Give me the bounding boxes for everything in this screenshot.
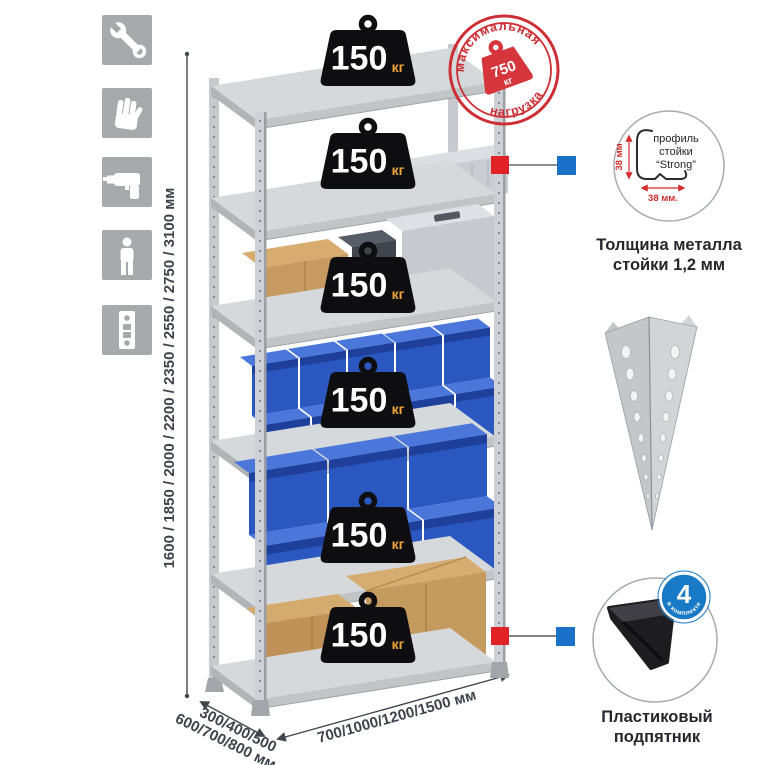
- load-unit: кг: [392, 401, 405, 417]
- profile-detail: 38 мм 38 мм. профиль стойки “Strong” Тол…: [596, 111, 742, 274]
- load-value: 150: [331, 267, 388, 305]
- load-unit: кг: [392, 162, 405, 178]
- profile-dim-bottom: 38 мм.: [648, 193, 678, 204]
- foot-caption-line2: подпятник: [614, 728, 701, 746]
- plastic-foot-detail: 4 в комплекте Пластиковый подпятник: [593, 571, 717, 746]
- load-unit: кг: [392, 286, 405, 302]
- feature-icons-column: [102, 15, 152, 355]
- load-value: 150: [331, 40, 388, 78]
- height-dimension: 1600 / 1850 / 2000 / 2200 / 2350 / 2550 …: [161, 52, 189, 698]
- profile-label-line3: “Strong”: [656, 159, 696, 171]
- corner-post-image: [605, 315, 697, 530]
- infographic-canvas: 1600 / 1850 / 2000 / 2200 / 2350 / 2550 …: [0, 0, 765, 765]
- load-unit: кг: [392, 59, 405, 75]
- load-value: 150: [331, 617, 388, 655]
- foot-callout-connector: [491, 627, 575, 646]
- load-value: 150: [331, 382, 388, 420]
- height-dimension-label: 1600 / 1850 / 2000 / 2200 / 2350 / 2550 …: [161, 188, 178, 569]
- profile-caption-line2: стойки 1,2 мм: [613, 256, 725, 274]
- profile-label-line2: стойки: [659, 146, 693, 158]
- load-unit: кг: [392, 636, 405, 652]
- load-badge: 150 кг: [321, 18, 416, 87]
- load-value: 150: [331, 517, 388, 555]
- gloves-icon: [102, 88, 152, 138]
- rack-post-icon: [102, 305, 152, 355]
- included-count-badge: 4 в комплекте: [658, 571, 710, 623]
- load-value: 150: [331, 143, 388, 181]
- callout-marker-red: [491, 627, 509, 645]
- callout-marker-blue: [557, 156, 576, 175]
- wrench-icon: [102, 15, 152, 65]
- profile-dim-side: 38 мм: [614, 143, 625, 170]
- shelving-rack-infographic: 1600 / 1850 / 2000 / 2200 / 2350 / 2550 …: [0, 0, 765, 765]
- callout-marker-blue: [556, 627, 575, 646]
- load-badge: 150 кг: [321, 121, 416, 190]
- person-icon: [102, 230, 152, 280]
- rack-post-rear-left: [209, 78, 219, 686]
- profile-label-line1: профиль: [653, 133, 699, 145]
- load-unit: кг: [392, 536, 405, 552]
- callout-marker-red: [491, 156, 509, 174]
- foot-caption-line1: Пластиковый: [601, 708, 712, 726]
- drill-icon: [102, 157, 152, 207]
- included-count-number: 4: [677, 579, 692, 609]
- profile-callout-connector: [491, 156, 576, 175]
- profile-caption-line1: Толщина металла: [596, 236, 742, 254]
